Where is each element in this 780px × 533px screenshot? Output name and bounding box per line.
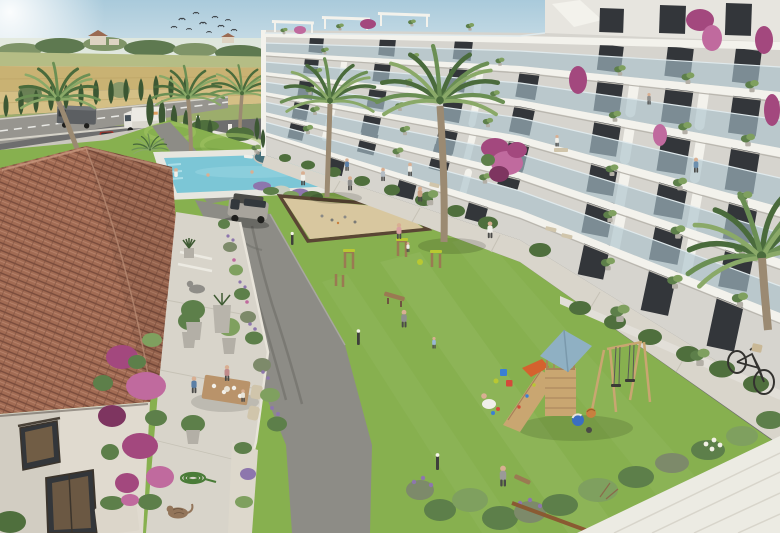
tree-cluster (124, 40, 176, 56)
planter-shrub (235, 496, 253, 508)
lavender (253, 327, 257, 331)
lavender (231, 238, 234, 241)
climber-leaf (138, 494, 162, 510)
scene (0, 0, 780, 533)
toy (491, 411, 495, 415)
shrub (655, 453, 689, 473)
truck-windshield (125, 115, 131, 121)
shrub (424, 499, 456, 521)
flower-bush (263, 187, 279, 195)
hedge (279, 154, 291, 162)
bougainvillea (653, 124, 667, 146)
bougainvillea (126, 372, 166, 400)
bloom (245, 300, 249, 304)
window (599, 8, 624, 33)
balcony-table (554, 148, 568, 152)
bougainvillea (122, 433, 158, 459)
planter-shrub (100, 496, 124, 510)
climber-leaf (145, 410, 167, 426)
lavender (243, 285, 246, 288)
bollard-lamp (291, 232, 294, 235)
bougainvillea (755, 26, 773, 54)
shrub (406, 480, 434, 500)
bloom (704, 442, 709, 447)
hedge (384, 185, 400, 196)
lavender (238, 280, 241, 283)
bench-leg (400, 301, 402, 307)
climber-leaf (128, 355, 146, 369)
hedge (354, 176, 370, 186)
pool-steps (168, 164, 181, 165)
hedge (447, 205, 465, 217)
render-image (0, 0, 780, 533)
swimmer-head (206, 173, 209, 176)
pot (186, 430, 200, 444)
suv-rear-window (230, 199, 240, 210)
shrub (542, 494, 578, 516)
shrub (218, 219, 230, 229)
pergola-post (426, 16, 428, 27)
shrub (245, 332, 263, 345)
bougainvillea (294, 26, 306, 34)
pergola-post (311, 24, 313, 33)
plate (232, 386, 236, 390)
house-window-upper (18, 418, 60, 470)
lavender (266, 376, 270, 380)
bougainvillea (489, 166, 509, 182)
planter-lavender (240, 468, 256, 480)
boule (321, 215, 324, 218)
swing-seat (611, 384, 621, 387)
lavender (226, 234, 229, 237)
lavender (421, 476, 425, 480)
bougainvillea (569, 66, 587, 94)
tree-cluster (173, 43, 217, 57)
boule (354, 221, 357, 224)
pergola-post (380, 15, 382, 26)
tree-cluster (35, 38, 85, 54)
shrub (482, 506, 518, 530)
lavender (429, 483, 433, 487)
serving-bowl (224, 386, 230, 392)
cat-head (167, 506, 174, 513)
lavender (276, 412, 280, 416)
shrub (726, 426, 758, 446)
lavender (261, 370, 265, 374)
shrub (223, 242, 237, 252)
pot (184, 248, 194, 258)
tower-base (545, 368, 576, 416)
bollard-light (436, 456, 439, 470)
swimmer-head (250, 170, 253, 173)
lavender (248, 322, 252, 326)
shrub (267, 417, 287, 432)
bloom (712, 438, 717, 443)
climb-hold (517, 405, 520, 408)
toy (496, 407, 500, 411)
bougainvillea-leaf (481, 154, 495, 166)
palm-trunk (240, 94, 242, 128)
bucket (500, 369, 507, 376)
palm-shadow (418, 238, 486, 254)
bollard-light (291, 234, 294, 245)
pot (186, 322, 202, 340)
palm-shadow (310, 192, 362, 204)
farmhouse (222, 37, 234, 43)
gym-handle (343, 249, 355, 252)
bollard-lamp (436, 453, 440, 457)
gym-wheel (417, 259, 423, 265)
bloom (710, 447, 715, 452)
bougainvillea (764, 94, 780, 126)
shrub (618, 466, 654, 488)
crouch-head (481, 393, 487, 399)
pergola-post (274, 23, 276, 32)
shrub (240, 311, 256, 323)
planter-flower (121, 494, 139, 506)
farmhouse (109, 39, 119, 45)
bench-leg (387, 298, 389, 304)
climber-leaf (142, 333, 162, 347)
lavender (270, 406, 274, 410)
bougainvillea (360, 19, 376, 29)
bougainvillea (115, 473, 139, 493)
bollard-light (357, 332, 360, 345)
gym-handle (430, 250, 442, 253)
climb-hold (532, 383, 535, 386)
farmhouse (90, 36, 106, 45)
hedge (529, 243, 551, 257)
pergola-post (324, 19, 326, 29)
crouch-body (482, 399, 496, 409)
window (725, 3, 752, 36)
bloom (718, 443, 723, 448)
bougainvillea (146, 466, 174, 488)
bougainvillea (98, 405, 126, 427)
hedge (569, 301, 591, 315)
olive-crown (181, 300, 205, 320)
ribbed-pot (213, 305, 231, 333)
play-ball (586, 427, 592, 433)
planter-shrub (234, 442, 252, 454)
swimmer-head (174, 168, 178, 172)
lavender (538, 504, 542, 508)
bougainvillea (507, 142, 527, 158)
toy (494, 379, 499, 384)
palm-trunk (327, 104, 330, 197)
pot (222, 338, 236, 354)
shrub (229, 265, 243, 276)
shrub (452, 488, 488, 512)
hedge (301, 161, 315, 170)
lavender (412, 480, 416, 484)
swimmer-body (174, 172, 178, 178)
swing-seat (625, 379, 635, 382)
bloom (232, 258, 236, 262)
climb-hold (525, 394, 528, 397)
shrub (578, 478, 618, 502)
climber-leaf (101, 444, 119, 460)
shrub (260, 388, 280, 402)
shrub (234, 288, 250, 300)
window (659, 5, 686, 34)
climber-leaf (93, 375, 113, 391)
house-window-lower (46, 470, 97, 533)
jack-ball (337, 222, 339, 224)
window-glow (25, 426, 54, 463)
boule (344, 216, 347, 219)
bougainvillea (702, 25, 722, 51)
bollard-lamp (357, 329, 361, 333)
shrub (253, 358, 271, 372)
boule (331, 219, 334, 222)
plate (212, 384, 216, 388)
garden-statue (187, 281, 193, 287)
lavender (528, 498, 532, 502)
bucket (506, 380, 513, 387)
